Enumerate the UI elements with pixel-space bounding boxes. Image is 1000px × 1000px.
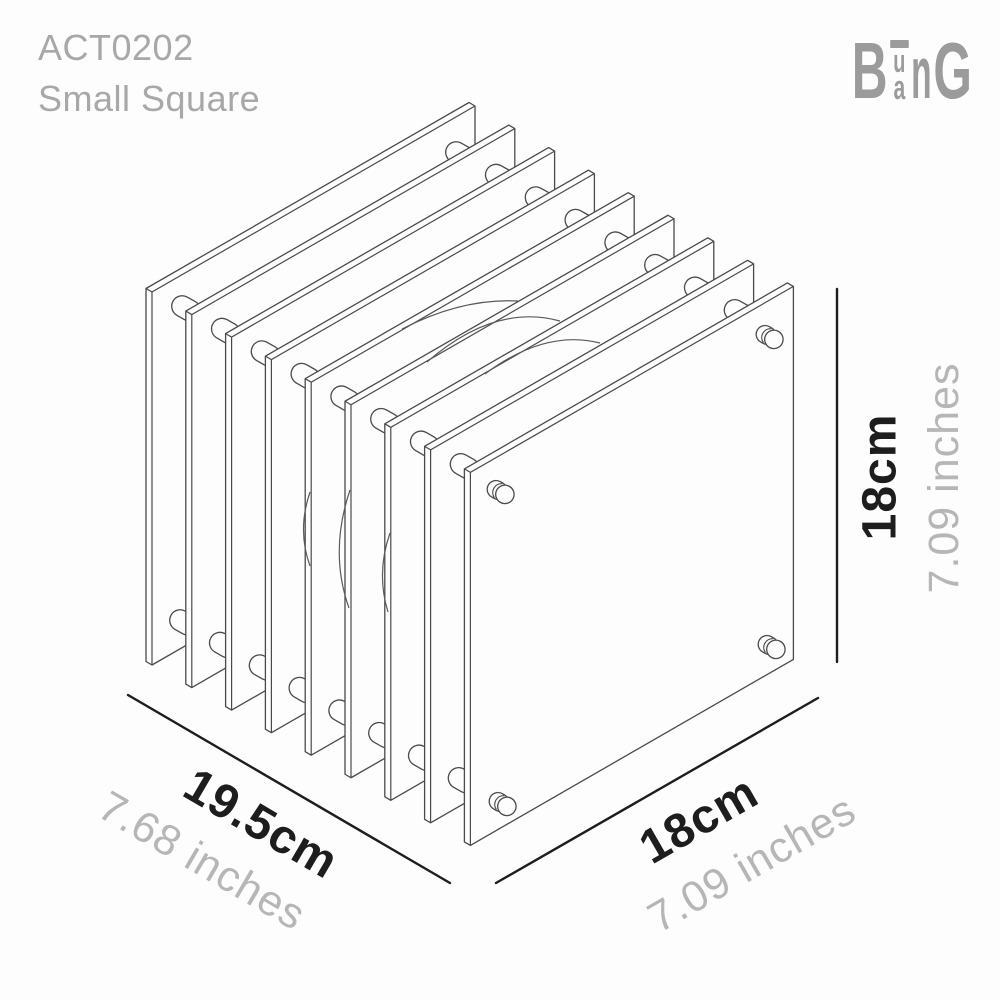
height-cm-label: 18cm xyxy=(854,414,907,541)
product-diagram: 18cm 7.09 inches 19.5cm 7.68 inches 18cm… xyxy=(0,0,1000,1000)
product-dimension-page: ACT0202 Small Square B u a n G 18cm 7.09… xyxy=(0,0,1000,1000)
height-inches-label: 7.09 inches xyxy=(920,363,968,594)
stand-line-drawing xyxy=(146,103,793,846)
